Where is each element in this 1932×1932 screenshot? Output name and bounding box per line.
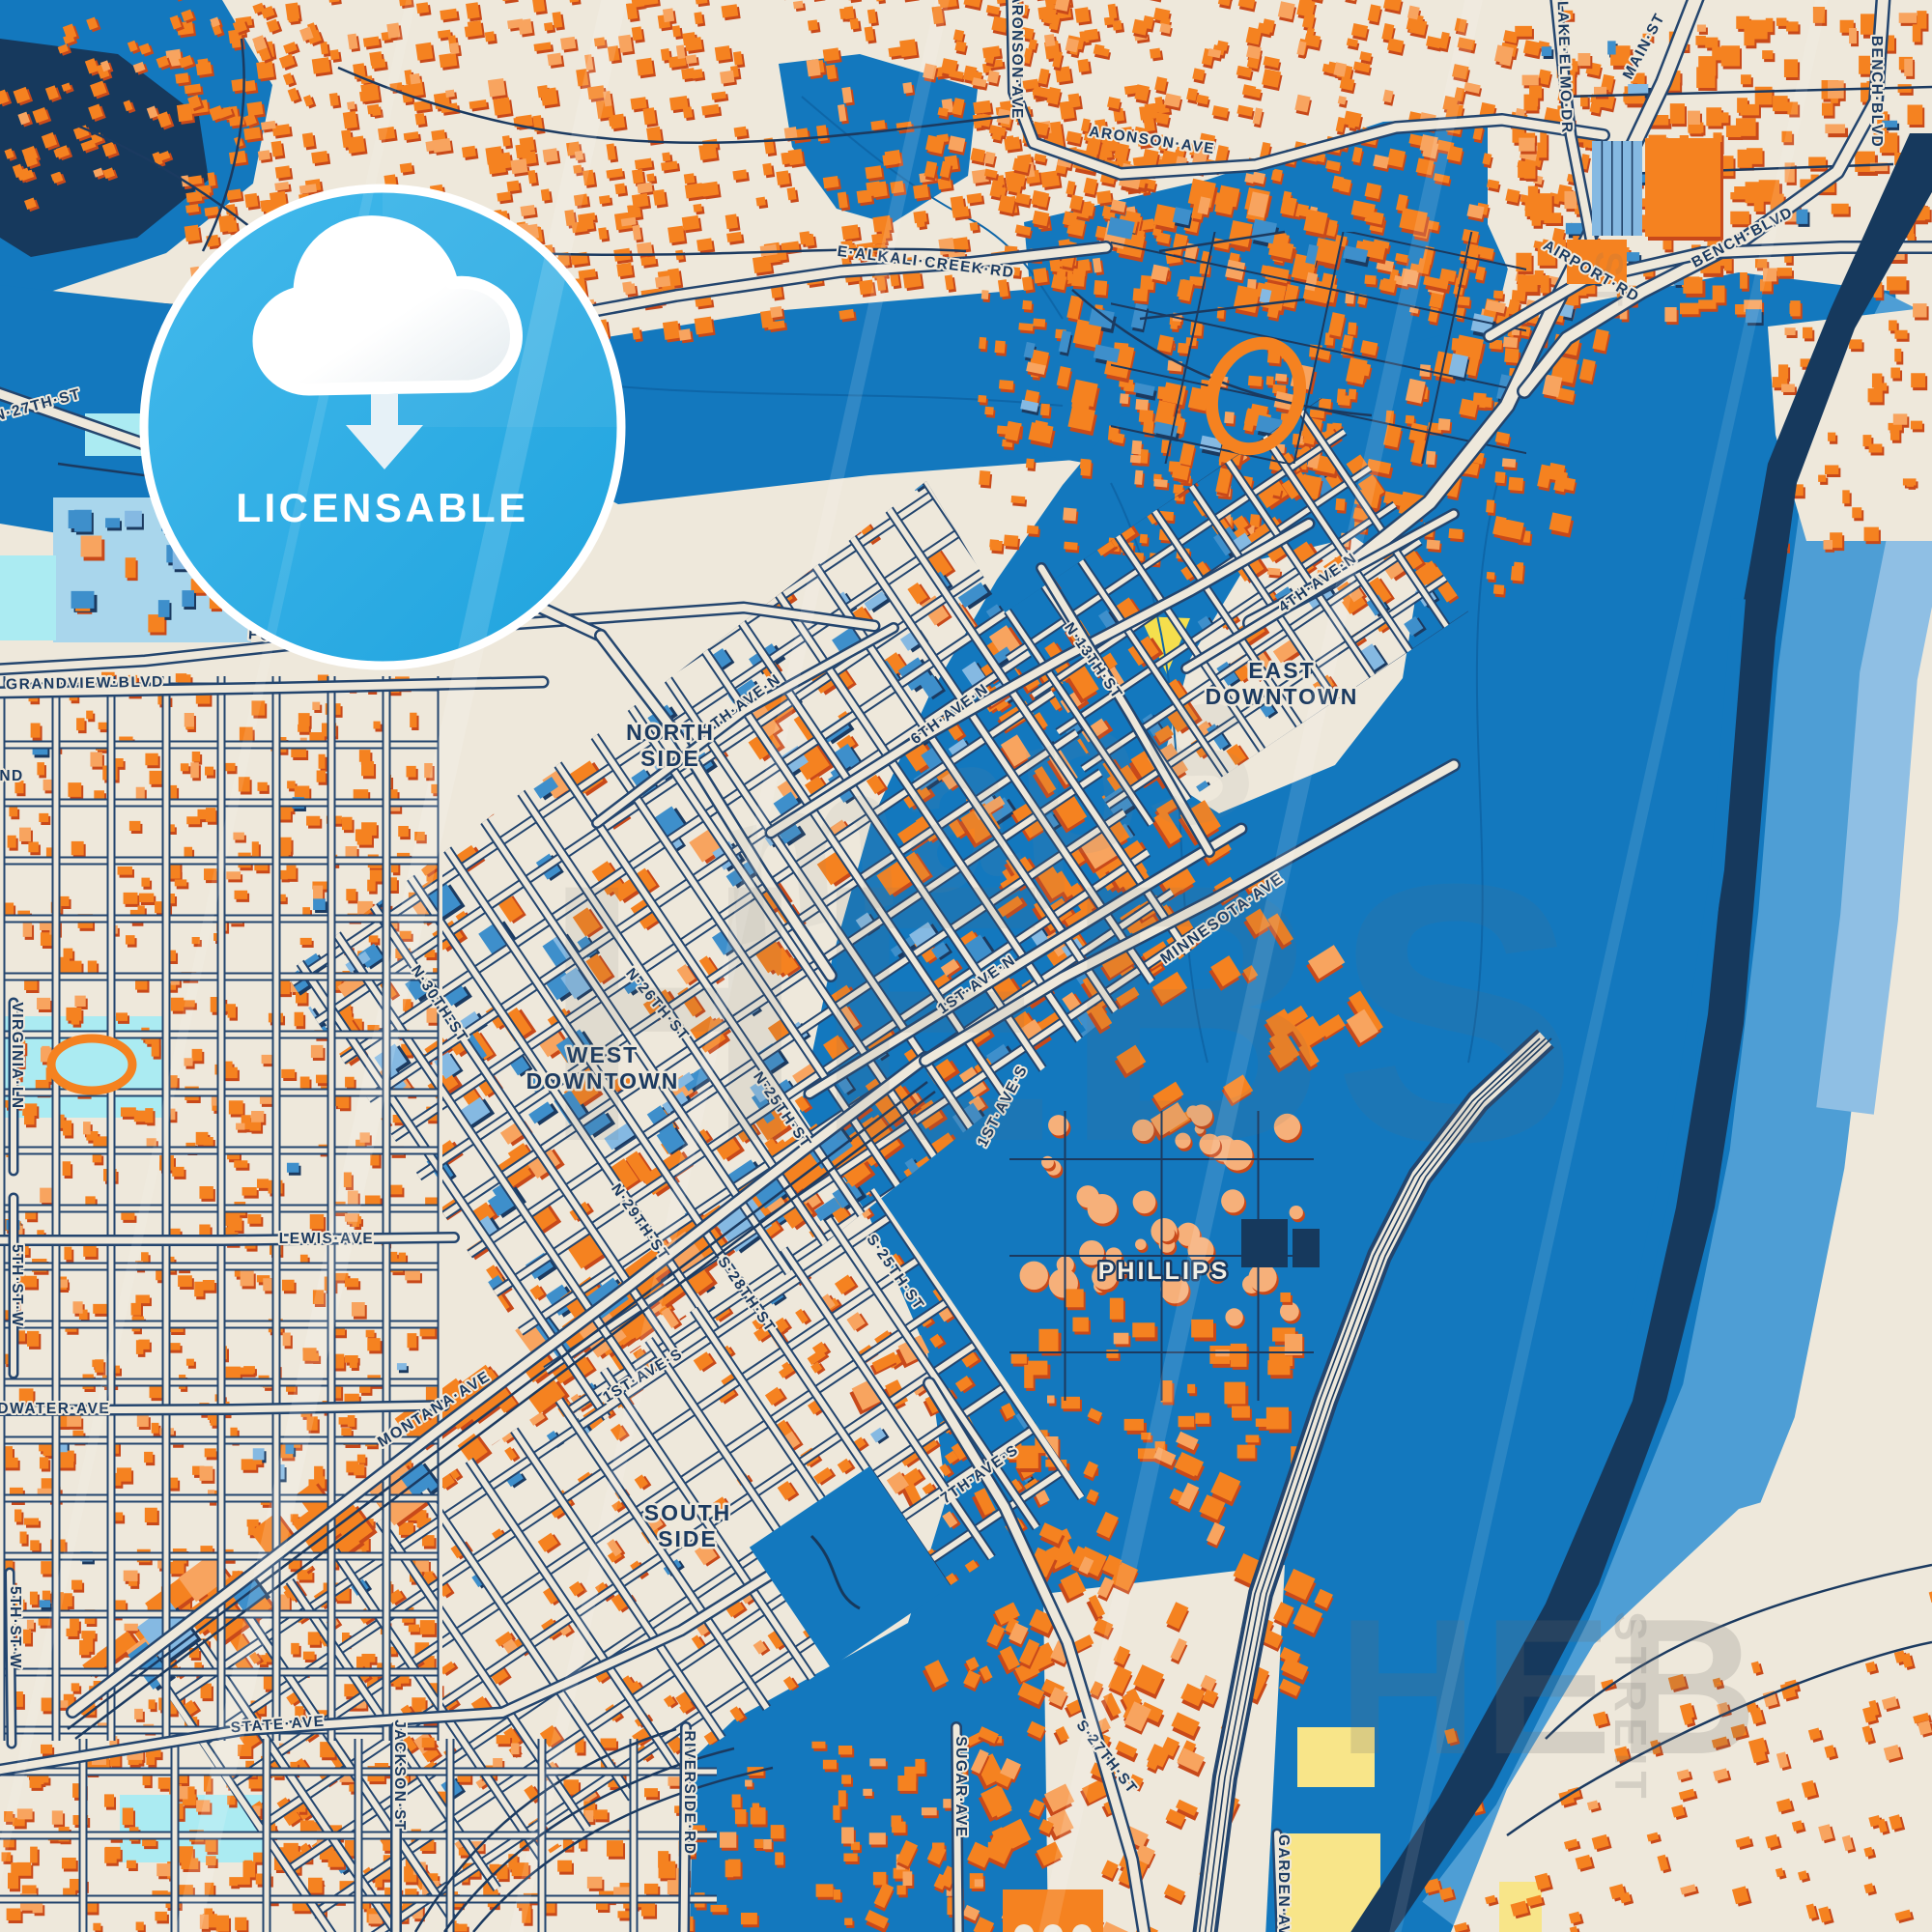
map-poster: ARONSON·AVEARONSON·AVEE·ALKALI·CREEK·RDL… <box>0 0 1932 1932</box>
watermark-corner-big: HEB <box>1338 1579 1763 1795</box>
city-map-canvas: ARONSON·AVEARONSON·AVEE·ALKALI·CREEK·RDL… <box>0 0 1932 1932</box>
street-label-virginia-ln: VIRGINIA·LN <box>9 1002 25 1109</box>
campus-park-a <box>0 555 56 640</box>
badge-label: LICENSABLE <box>236 485 528 530</box>
street-label-sugar-ave: SUGAR·AVE <box>952 1736 969 1837</box>
street-label-5th-st-w: 5TH·ST·W <box>9 1244 25 1327</box>
street-label-5th-st-w: 5TH·ST·W <box>7 1586 23 1669</box>
street-label-riverside-rd: RIVERSIDE·RD <box>681 1730 697 1855</box>
street-label-garden-ave: GARDEN·AVE <box>1275 1834 1292 1932</box>
street-label-broadwater-ave: BROADWATER·AVE <box>0 1401 110 1417</box>
street-label-grandview-blvd: GRANDVIEW·BLVD <box>6 674 164 694</box>
shopping-mall <box>1645 138 1720 237</box>
industrial-pond <box>1241 1219 1288 1267</box>
street-label-lewis-ave: LEWIS·AVE <box>279 1231 374 1247</box>
street-label-jackson-st: JACKSON·ST <box>391 1719 408 1832</box>
street-label-bench-blvd: BENCH·BLVD <box>1868 36 1885 148</box>
street-label-nd: ND <box>0 768 24 784</box>
neighborhood-label-phillips: PHILLIPS <box>1098 1258 1231 1285</box>
school-track <box>51 1038 132 1091</box>
industrial-pond <box>1293 1229 1320 1267</box>
parking-lot <box>1592 141 1642 236</box>
street-label-aronson-ave: ARONSON·AVE <box>1009 0 1025 120</box>
road-lewis-ave <box>0 1237 454 1240</box>
watermark-top-vertical: ST <box>1587 251 1630 312</box>
watermark-corner-vertical: STREIT <box>1605 1611 1656 1804</box>
